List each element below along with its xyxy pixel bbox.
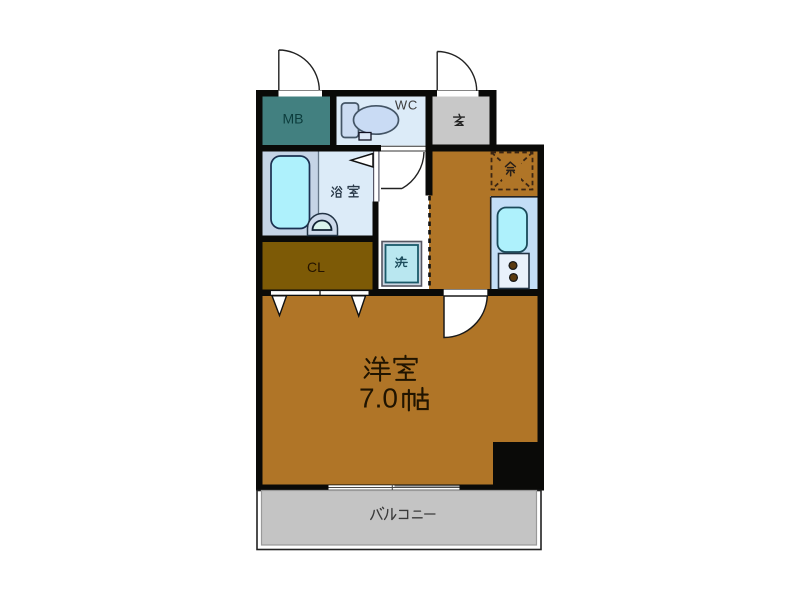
svg-text:7.0: 7.0: [359, 383, 398, 414]
svg-text:MB: MB: [283, 111, 304, 127]
svg-text:WC: WC: [395, 98, 418, 113]
svg-text:CL: CL: [307, 259, 325, 275]
